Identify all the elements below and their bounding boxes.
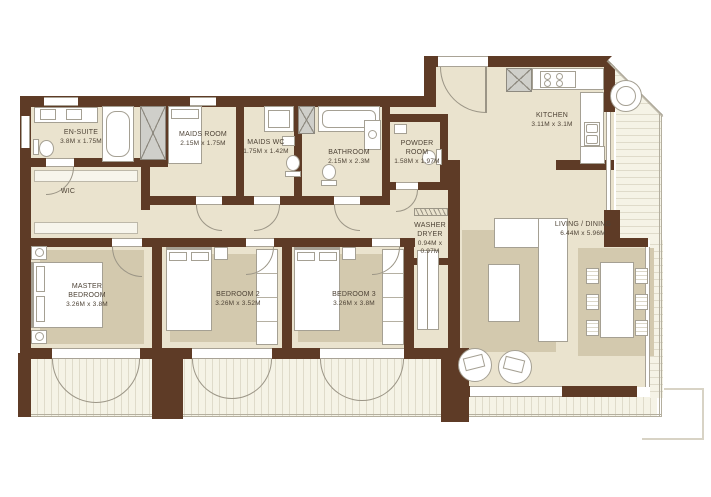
ensuite-sink: [66, 109, 82, 120]
slab-edge-line: [642, 438, 704, 440]
room-name: BEDROOM 2: [214, 291, 262, 300]
room-label-en-suite: EN-SUITE 3.8M x 1.75M: [50, 129, 112, 146]
room-label-bedroom-2: BEDROOM 2 3.26M x 3.52M: [214, 291, 262, 308]
master-bed-pillow: [36, 266, 45, 292]
room-name: EN-SUITE: [50, 129, 112, 138]
balcony-table-inner: [616, 86, 636, 106]
room-name: WASHER DRYER: [410, 222, 450, 240]
bathroom-sink: [368, 130, 377, 139]
dining-chair: [586, 268, 599, 284]
room-label-powder-room: POWDER ROOM 1.58M x 1.97M: [394, 140, 440, 166]
dining-table: [600, 262, 634, 338]
kitchen-sink-basin: [586, 124, 598, 133]
maids-toilet-tank: [285, 171, 301, 177]
kitchen-sink-basin: [586, 135, 598, 144]
wall-powder-top: [390, 114, 446, 122]
room-name: MAIDS WC: [238, 139, 294, 148]
ensuite-sink: [40, 109, 56, 120]
room-dims: 2.15M x 1.75M: [172, 140, 234, 148]
room-name: WIC: [48, 188, 88, 197]
slab-edge-line: [702, 388, 704, 440]
room-name: KITCHEN: [518, 112, 586, 121]
hob-burner: [556, 73, 563, 80]
wall-pier: [152, 348, 183, 419]
room-label-kitchen: KITCHEN 3.11M x 3.1M: [518, 112, 586, 129]
duct-shaft: [506, 68, 532, 92]
wic-shelf: [34, 222, 138, 234]
entry-door-opening: [438, 56, 488, 67]
ensuite-door-opening: [46, 158, 74, 167]
dining-chair: [635, 268, 648, 284]
window: [190, 97, 216, 106]
hall-closet-divider: [427, 251, 428, 329]
master-balcony-door-opening: [52, 348, 140, 359]
room-label-wic: WIC: [48, 188, 88, 197]
slab-edge-line: [664, 388, 704, 390]
washer-bifold-door: [414, 208, 448, 216]
bedroom2-nightstand: [214, 247, 228, 260]
room-dims: 0.94M x 0.97M: [410, 240, 450, 256]
balcony-deck-right-upper: [616, 108, 662, 240]
room-name: POWDER ROOM: [394, 140, 440, 158]
dining-chair: [635, 294, 648, 310]
wall-bath-right: [382, 106, 390, 196]
bathroom-door-opening: [334, 196, 360, 205]
room-dims: 3.11M x 3.1M: [518, 121, 586, 129]
maids-toilet: [286, 155, 300, 171]
bedroom3-nightstand: [342, 247, 356, 260]
room-name: LIVING / DINING: [546, 221, 620, 230]
bedroom3-pillow: [297, 252, 315, 261]
wall-master-bed2: [152, 247, 162, 348]
room-dims: 3.8M x 1.75M: [50, 138, 112, 146]
bedroom3-balcony-door-opening: [320, 348, 404, 359]
room-name: BATHROOM: [318, 149, 380, 158]
bedroom2-pillow: [191, 252, 209, 261]
master-door-opening: [112, 238, 142, 247]
wall: [18, 353, 31, 417]
wall-bed2-bed3: [282, 247, 292, 348]
hall-closet: [417, 250, 439, 330]
master-lamp: [35, 248, 44, 257]
room-dims: 3.26M x 3.52M: [214, 300, 262, 308]
bedroom2-balcony-door-opening: [192, 348, 272, 359]
dining-chair: [586, 320, 599, 336]
room-dims: 1.58M x 1.97M: [394, 158, 440, 166]
living-balcony-door-opening: [470, 386, 562, 397]
room-label-living-dining: LIVING / DINING 6.44M x 5.96M: [546, 221, 620, 238]
room-label-bathroom: BATHROOM 2.15M x 2.3M: [318, 149, 380, 166]
maids-bed-pillow: [171, 109, 199, 119]
wall-bedrooms-top: [31, 238, 415, 247]
bedroom2-door-opening: [246, 238, 274, 247]
bedroom3-pillow: [319, 252, 337, 261]
maids-wc-door-opening: [254, 196, 280, 205]
room-label-bedroom-3: BEDROOM 3 3.26M x 3.8M: [330, 291, 378, 308]
room-dims: 1.75M x 1.42M: [238, 148, 294, 156]
window: [44, 97, 78, 106]
room-label-maids-room: MAIDS ROOM 2.15M x 1.75M: [172, 131, 234, 148]
hob-burner: [556, 80, 563, 87]
balcony-railing-bottom: [31, 414, 443, 417]
room-dims: 3.26M x 3.8M: [330, 300, 378, 308]
hob-burner: [544, 80, 551, 87]
room-label-washer-dryer: WASHER DRYER 0.94M x 0.97M: [410, 222, 450, 256]
dining-chair: [635, 320, 648, 336]
dining-chair: [586, 294, 599, 310]
master-lamp: [35, 332, 44, 341]
kitchen-fridge: [580, 146, 605, 164]
powder-sink: [394, 124, 407, 134]
room-dims: 6.44M x 5.96M: [546, 230, 620, 238]
bathroom-toilet: [322, 164, 336, 180]
room-name: BEDROOM 3: [330, 291, 378, 300]
window: [21, 116, 30, 148]
room-name: MASTER BEDROOM: [56, 283, 118, 301]
room-name: MAIDS ROOM: [172, 131, 234, 140]
maids-room-door-opening: [196, 196, 222, 205]
bedroom2-pillow: [169, 252, 187, 261]
balcony-railing-right: [659, 112, 662, 417]
room-label-master-bedroom: MASTER BEDROOM 3.26M x 3.8M: [56, 283, 118, 309]
room-label-maids-wc: MAIDS WC 1.75M x 1.42M: [238, 139, 294, 156]
balcony-railing-bottom-right: [455, 414, 661, 417]
bathroom-toilet-tank: [321, 180, 337, 186]
floor-plan-canvas: EN-SUITE 3.8M x 1.75M WIC MAIDS ROOM 2.1…: [0, 0, 711, 497]
maids-shower-tray: [268, 110, 290, 128]
coffee-table: [488, 264, 520, 322]
master-bed-pillow: [36, 296, 45, 322]
entry-door-leaf: [485, 67, 487, 113]
hob-burner: [544, 73, 551, 80]
kitchen-window-glazing: [606, 112, 611, 210]
room-dims: 3.26M x 3.8M: [56, 301, 118, 309]
powder-door-opening: [396, 182, 418, 190]
bedroom3-door-opening: [372, 238, 400, 247]
duct-shaft: [140, 106, 166, 160]
wall-living-step: [604, 238, 648, 247]
duct-shaft: [298, 106, 315, 134]
room-dims: 2.15M x 2.3M: [318, 158, 380, 166]
